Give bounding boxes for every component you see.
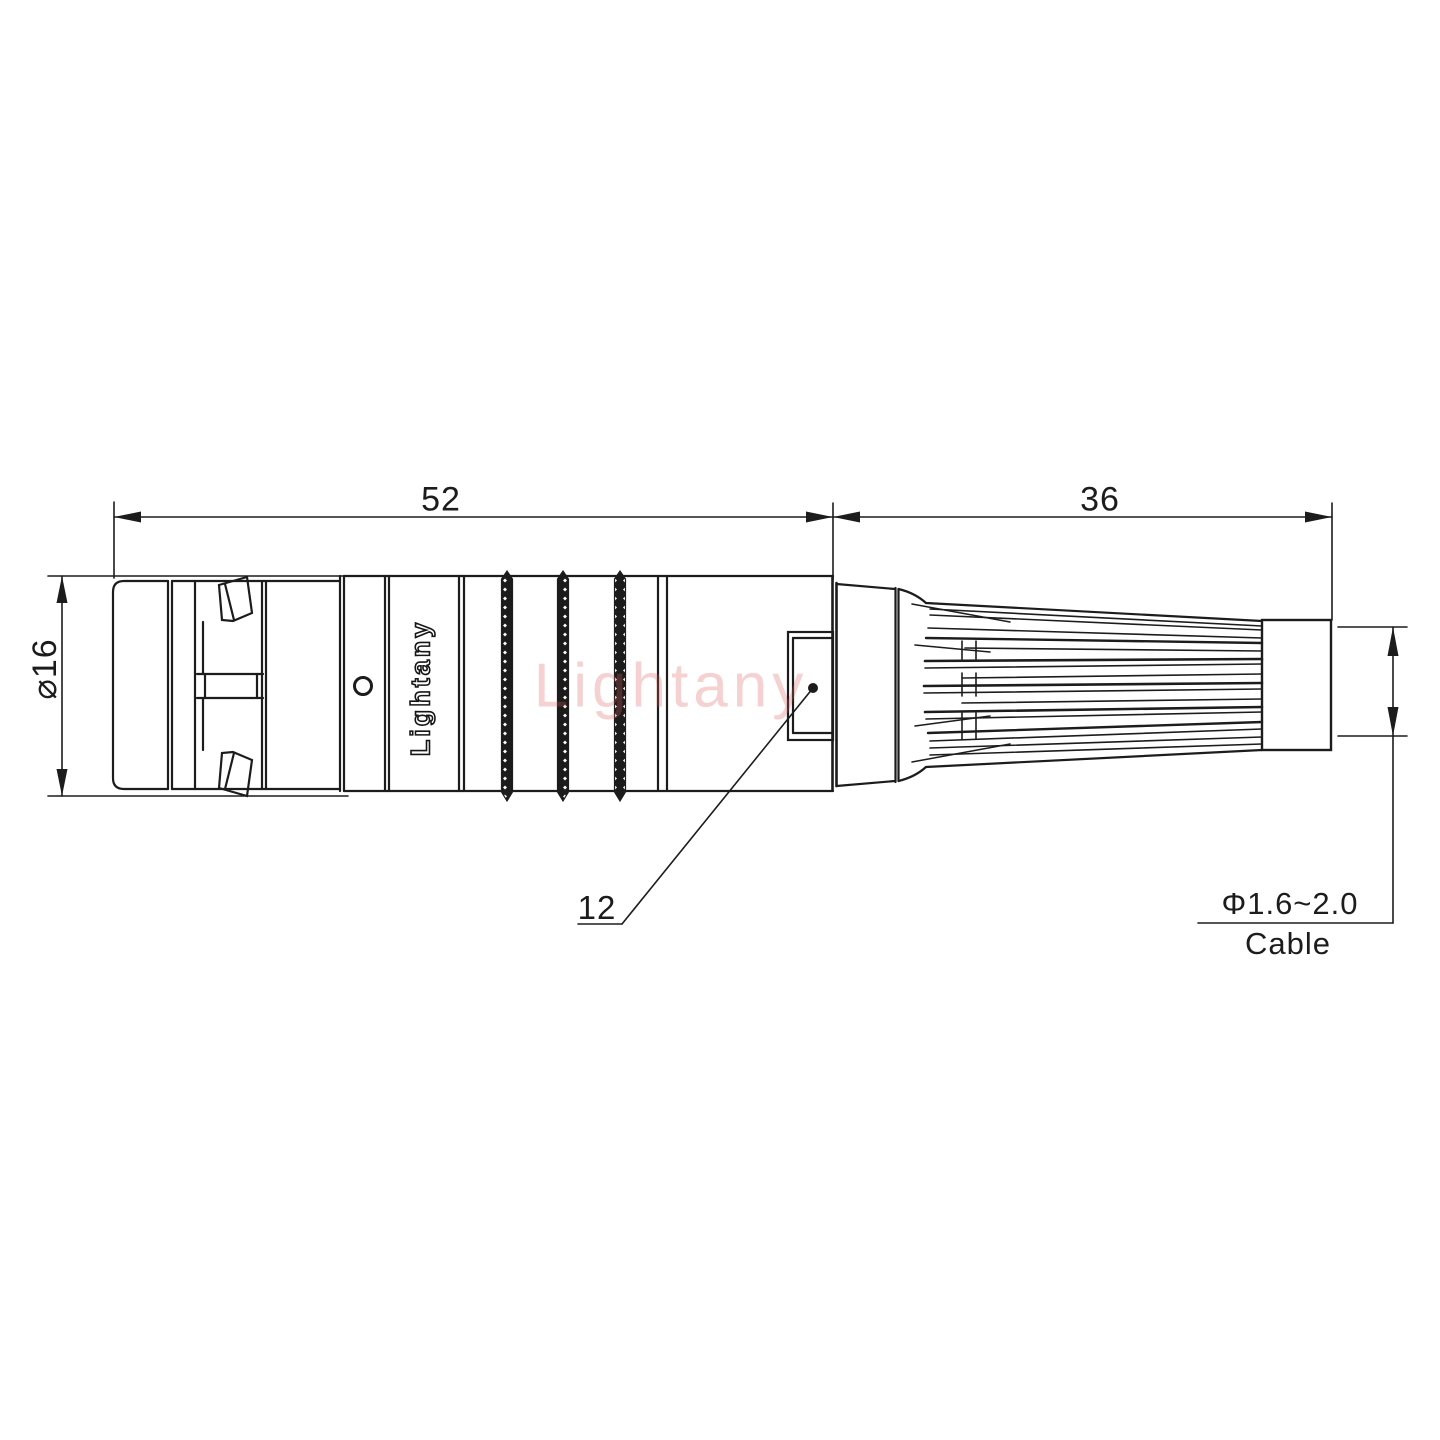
dim-cable bbox=[1198, 627, 1407, 923]
dim-label-cable-range: Φ1.6~2.0 bbox=[1221, 886, 1358, 922]
dim-label-diameter: ⌀16 bbox=[25, 638, 65, 699]
dim-52 bbox=[114, 512, 833, 523]
dim-label-rear-length: 36 bbox=[1080, 481, 1120, 520]
cable-bushing bbox=[1262, 620, 1331, 750]
dim-label-latch: 12 bbox=[578, 889, 617, 927]
top-key bbox=[219, 577, 252, 621]
dim-dia16 bbox=[48, 576, 348, 796]
strain-relief bbox=[837, 584, 1332, 786]
technical-drawing-page: 52 36 ⌀16 12 Φ1.6~2.0 Cable Lightany Lig… bbox=[0, 0, 1440, 1440]
body-engraving-text: Lightany bbox=[406, 620, 437, 757]
key-slot bbox=[197, 622, 263, 750]
dim-label-front-length: 52 bbox=[421, 481, 461, 520]
boot-fins bbox=[912, 604, 1262, 762]
watermark-text: Lightany bbox=[534, 651, 808, 722]
dim-label-cable-word: Cable bbox=[1245, 926, 1331, 962]
collar-hole bbox=[355, 678, 372, 695]
